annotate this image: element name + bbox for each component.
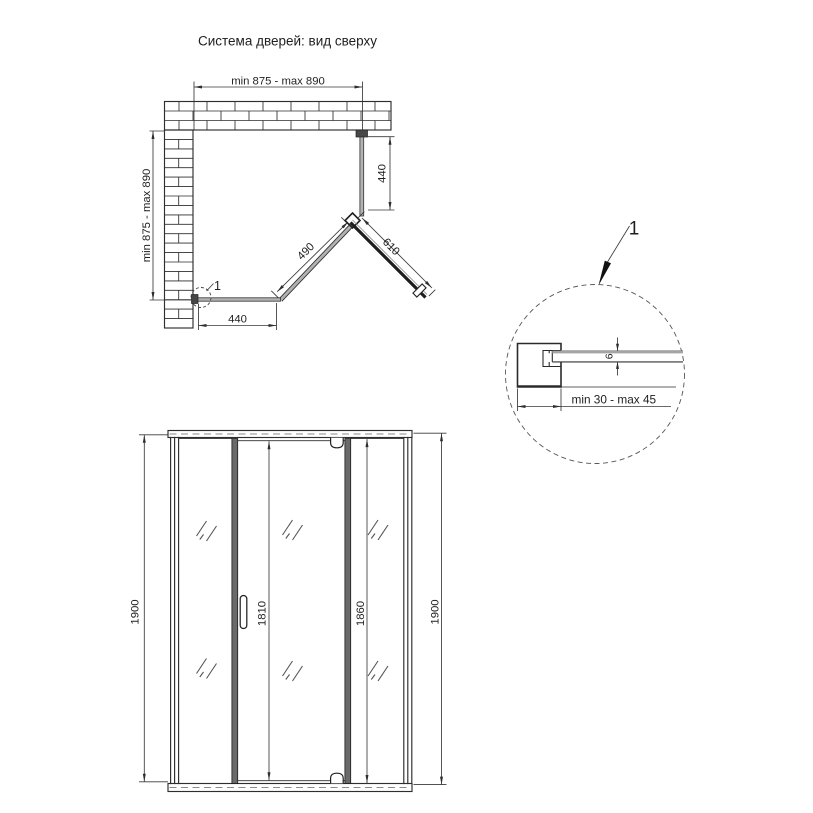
dim-lines: [139, 435, 168, 782]
door-leaf-line: [351, 223, 426, 298]
top-view: min 875 - max 890 min 875 - max 890 440: [141, 76, 435, 331]
dim-label-door-height: 1810: [256, 601, 268, 626]
dim-height-right: 1900: [414, 433, 447, 784]
door-leaf-top-view: [351, 220, 428, 298]
brick-joints: [165, 139, 194, 318]
dim-lines: [150, 131, 192, 300]
callout-arrowhead-icon: [599, 261, 612, 286]
dim-label-glass-height: 1860: [355, 601, 367, 626]
glass-core: [281, 227, 351, 301]
wall-profile-section: [518, 344, 562, 388]
brick-joints: [165, 102, 392, 131]
wall-bracket-top: [356, 130, 368, 137]
glass-panel-diagonal: [279, 225, 352, 301]
dim-wall-profile: min 30 - max 45: [518, 389, 672, 412]
glass-hatch-icon: [283, 661, 303, 681]
detail-marker-label: 1: [214, 279, 221, 293]
glass-hatch-icon: [368, 661, 388, 681]
callout-label: 1: [629, 219, 640, 240]
dim-label-side-panel-right: 440: [376, 164, 388, 183]
door-handle: [240, 596, 247, 629]
dim-door-diagonal: 610: [358, 212, 435, 296]
dim-glass-height: 1860: [355, 439, 369, 783]
door-top-bottom-edges: [238, 441, 345, 781]
dim-label-height-left: 1900: [129, 599, 141, 624]
glass-hatch-icon: [283, 520, 303, 540]
page-title: Система дверей: вид сверху: [198, 34, 377, 49]
detail-view: 1 6 min 30 - max 45: [506, 219, 685, 464]
technical-drawing: Система дверей: вид сверху min 875 - max…: [0, 0, 813, 813]
dim-side-panel-right: 440: [364, 137, 395, 210]
wall-outline: [165, 102, 392, 131]
dim-label-wall-profile: min 30 - max 45: [572, 393, 657, 407]
dim-door-height: 1810: [256, 441, 270, 780]
glass-panel-right: [360, 133, 364, 216]
drawing-sheet: Система дверей: вид сверху min 875 - max…: [0, 0, 813, 813]
dim-label-depth-left: min 875 - max 890: [141, 169, 153, 263]
callout-leader-line: [608, 226, 630, 262]
glass-hatch-icon: [197, 521, 217, 541]
dim-glass-thickness: 6: [604, 338, 619, 376]
glass-hatch-icon: [197, 659, 217, 679]
dim-fixed-diagonal: 490: [271, 217, 349, 298]
brick-wall-top: [165, 102, 392, 131]
dim-label-side-panel-bottom: 440: [228, 314, 247, 326]
hinge-top: [331, 438, 344, 448]
dim-depth-left: min 875 - max 890: [141, 131, 192, 300]
door-glass-edge: [353, 220, 428, 295]
divider-profile-right: [345, 439, 351, 784]
glass-panel-bottom: [198, 298, 281, 301]
dim-label-width-top: min 875 - max 890: [231, 76, 325, 88]
divider-profile-left: [232, 439, 238, 784]
dim-label-glass-thickness: 6: [604, 353, 616, 359]
dim-arrows: [616, 344, 619, 369]
brick-wall-left: [165, 130, 194, 328]
hinge-bottom: [331, 773, 344, 783]
detail-marker-leader: [207, 284, 214, 292]
wall-profile-left: [171, 438, 179, 784]
dim-height-left: 1900: [129, 435, 168, 782]
dim-lines: [194, 82, 363, 134]
wall-profile-right: [404, 438, 412, 784]
dim-width-top: min 875 - max 890: [194, 76, 363, 134]
front-view: 1900 1810: [129, 431, 446, 792]
dim-label-height-right: 1900: [429, 599, 441, 624]
dim-label-fixed-diagonal: 490: [295, 241, 317, 263]
glass-section: [552, 351, 683, 362]
glass-hatch-icon: [368, 520, 388, 540]
dim-side-panel-bottom: 440: [199, 303, 277, 330]
